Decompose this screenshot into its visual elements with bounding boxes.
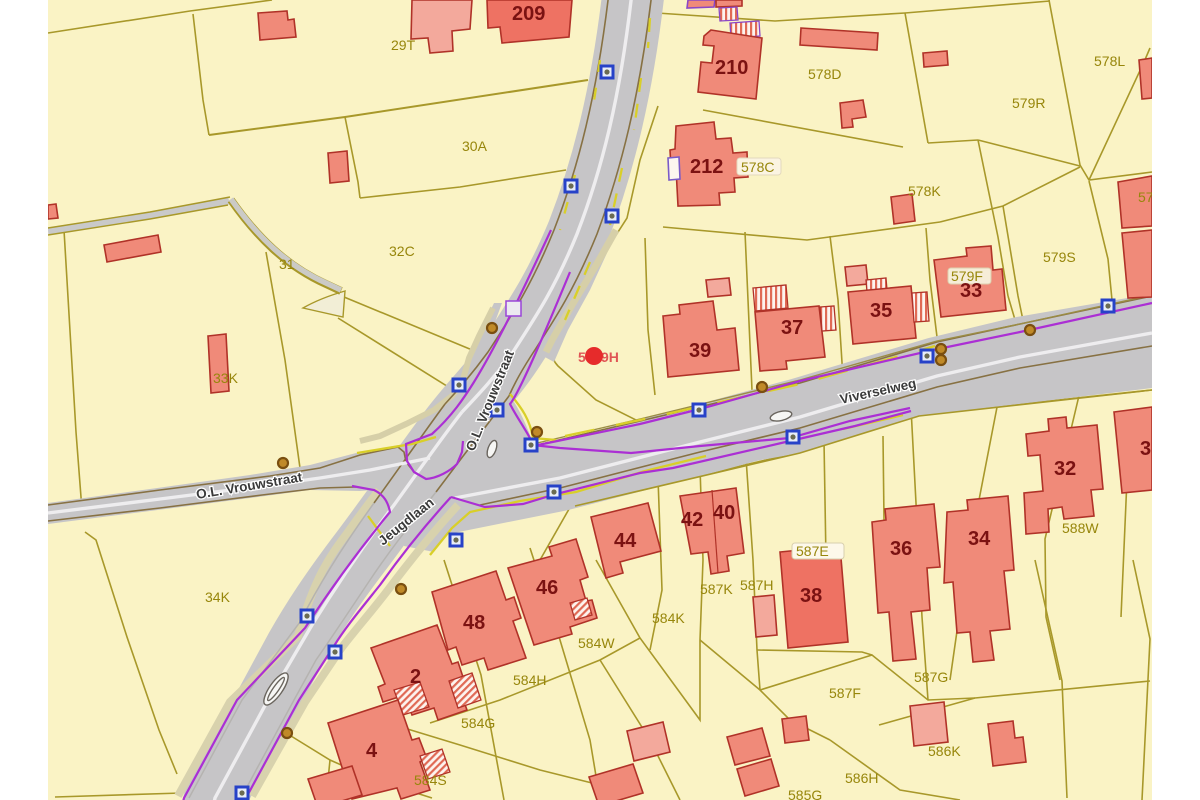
svg-text:32C: 32C bbox=[389, 243, 415, 259]
svg-text:587F: 587F bbox=[829, 685, 861, 701]
svg-text:34K: 34K bbox=[205, 589, 231, 605]
svg-text:44: 44 bbox=[614, 530, 637, 552]
svg-text:587H: 587H bbox=[740, 577, 773, 593]
svg-text:32: 32 bbox=[1054, 458, 1076, 480]
svg-text:587K: 587K bbox=[700, 581, 733, 597]
svg-text:578D: 578D bbox=[808, 66, 841, 82]
svg-text:584W: 584W bbox=[578, 635, 615, 651]
svg-text:212: 212 bbox=[690, 156, 723, 178]
svg-text:585G: 585G bbox=[788, 787, 822, 800]
svg-text:46: 46 bbox=[536, 577, 558, 599]
svg-text:584G: 584G bbox=[461, 715, 495, 731]
svg-text:37: 37 bbox=[781, 317, 803, 339]
svg-text:40: 40 bbox=[713, 502, 735, 524]
svg-text:35: 35 bbox=[870, 300, 892, 322]
svg-text:578K: 578K bbox=[908, 183, 941, 199]
svg-text:39: 39 bbox=[689, 340, 711, 362]
svg-text:29T: 29T bbox=[391, 37, 416, 53]
svg-text:3: 3 bbox=[1140, 438, 1151, 460]
svg-text:587G: 587G bbox=[914, 669, 948, 685]
svg-text:42: 42 bbox=[681, 509, 703, 531]
svg-text:4: 4 bbox=[366, 740, 378, 762]
svg-text:33: 33 bbox=[960, 280, 982, 302]
svg-text:33K: 33K bbox=[213, 370, 239, 386]
svg-text:210: 210 bbox=[715, 57, 748, 79]
svg-text:48: 48 bbox=[463, 612, 485, 634]
svg-text:38: 38 bbox=[800, 585, 822, 607]
svg-text:587E: 587E bbox=[796, 543, 829, 559]
svg-text:2: 2 bbox=[410, 666, 421, 688]
svg-text:57: 57 bbox=[1138, 189, 1154, 205]
svg-text:586H: 586H bbox=[845, 770, 878, 786]
svg-text:209: 209 bbox=[512, 3, 545, 25]
svg-text:34: 34 bbox=[968, 528, 991, 550]
svg-text:588W: 588W bbox=[1062, 520, 1099, 536]
svg-text:579S: 579S bbox=[1043, 249, 1076, 265]
svg-text:586K: 586K bbox=[928, 743, 961, 759]
svg-text:579R: 579R bbox=[1012, 95, 1045, 111]
svg-text:584K: 584K bbox=[652, 610, 685, 626]
svg-text:30A: 30A bbox=[462, 138, 488, 154]
svg-text:9H: 9H bbox=[601, 349, 619, 365]
svg-text:31: 31 bbox=[279, 256, 295, 272]
svg-text:578L: 578L bbox=[1094, 53, 1125, 69]
svg-text:578C: 578C bbox=[741, 159, 774, 175]
svg-text:584S: 584S bbox=[414, 772, 447, 788]
svg-text:584H: 584H bbox=[513, 672, 546, 688]
svg-text:5: 5 bbox=[578, 349, 586, 365]
svg-text:36: 36 bbox=[890, 538, 912, 560]
